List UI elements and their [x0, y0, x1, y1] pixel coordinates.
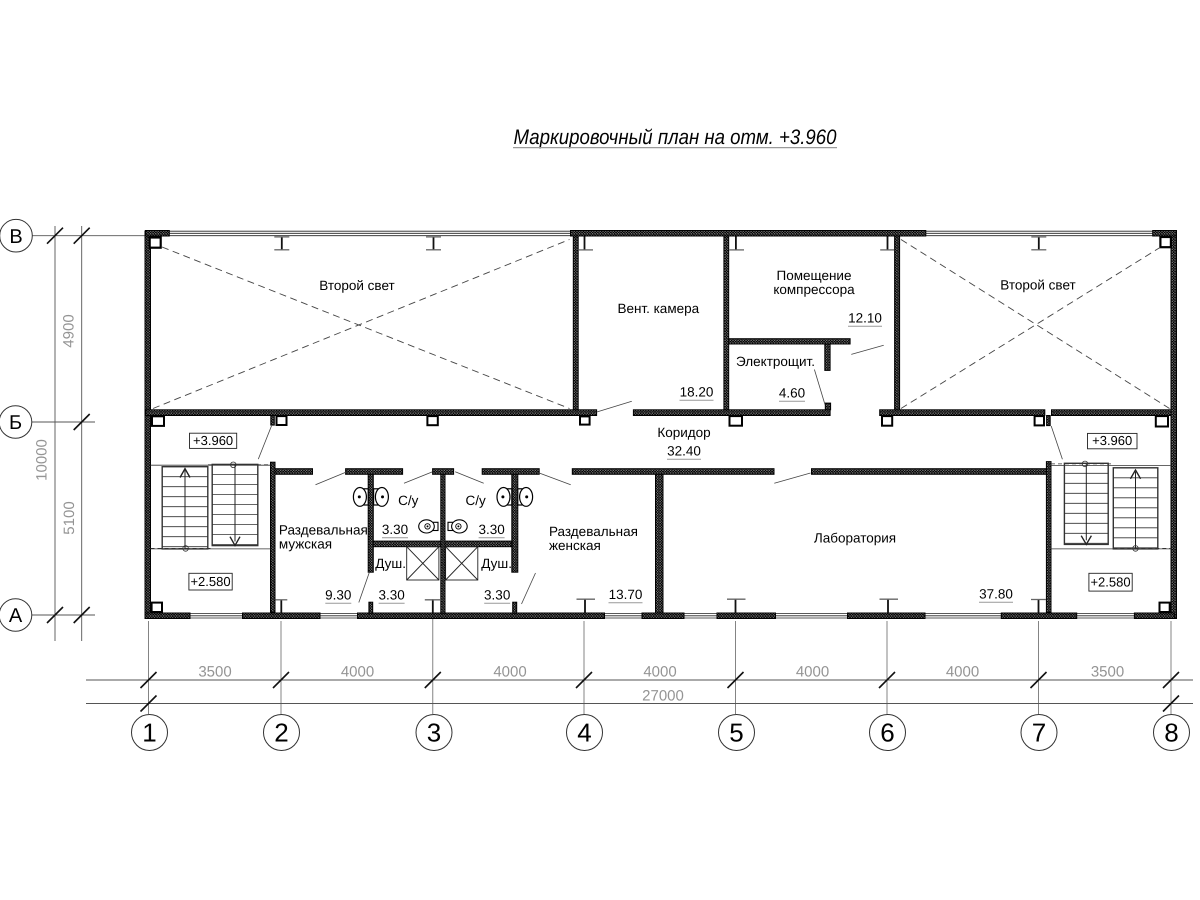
svg-text:3: 3 — [427, 718, 441, 748]
svg-text:32.40: 32.40 — [667, 444, 701, 459]
svg-text:3.30: 3.30 — [484, 588, 510, 603]
svg-text:Раздевальная: Раздевальная — [279, 523, 368, 538]
svg-text:4000: 4000 — [796, 664, 829, 681]
svg-text:5: 5 — [729, 718, 743, 748]
svg-text:Маркировочный план на отм. +3.: Маркировочный план на отм. +3.960 — [514, 126, 837, 149]
svg-text:12.10: 12.10 — [848, 311, 882, 326]
svg-text:3.30: 3.30 — [382, 522, 408, 537]
svg-text:Помещение: Помещение — [777, 268, 852, 283]
svg-text:Второй свет: Второй свет — [319, 278, 394, 293]
svg-text:27000: 27000 — [642, 688, 684, 705]
svg-text:Душ.: Душ. — [481, 556, 512, 571]
svg-text:Душ.: Душ. — [375, 556, 406, 571]
svg-text:Вент. камера: Вент. камера — [617, 301, 699, 316]
svg-text:4: 4 — [577, 718, 591, 748]
svg-text:4000: 4000 — [946, 664, 979, 681]
svg-text:4.60: 4.60 — [779, 386, 805, 401]
svg-text:3500: 3500 — [198, 664, 231, 681]
svg-text:+2.580: +2.580 — [1090, 574, 1130, 589]
svg-text:+2.580: +2.580 — [190, 574, 230, 589]
svg-text:Б: Б — [9, 412, 22, 434]
svg-text:женская: женская — [549, 538, 601, 553]
svg-text:Электрощит.: Электрощит. — [736, 354, 815, 369]
svg-text:Раздевальная: Раздевальная — [549, 524, 638, 539]
svg-text:мужская: мужская — [279, 537, 332, 552]
svg-text:4000: 4000 — [341, 664, 374, 681]
svg-text:13.70: 13.70 — [609, 587, 643, 602]
svg-text:4000: 4000 — [493, 664, 526, 681]
svg-text:18.20: 18.20 — [680, 385, 714, 400]
svg-text:Лаборатория: Лаборатория — [814, 531, 896, 546]
svg-text:3.30: 3.30 — [378, 588, 404, 603]
svg-text:9.30: 9.30 — [325, 588, 351, 603]
svg-text:А: А — [9, 605, 23, 627]
svg-text:5100: 5100 — [61, 501, 78, 534]
svg-text:компрессора: компрессора — [773, 282, 855, 297]
svg-text:4900: 4900 — [61, 314, 78, 347]
svg-text:3.30: 3.30 — [478, 522, 504, 537]
svg-text:6: 6 — [880, 718, 894, 748]
svg-text:В: В — [9, 226, 22, 248]
svg-text:2: 2 — [274, 718, 288, 748]
svg-text:10000: 10000 — [34, 439, 51, 481]
svg-text:С/у: С/у — [465, 493, 486, 508]
svg-text:37.80: 37.80 — [979, 587, 1013, 602]
svg-text:С/у: С/у — [398, 493, 419, 508]
svg-text:7: 7 — [1032, 718, 1046, 748]
svg-text:3500: 3500 — [1091, 664, 1124, 681]
svg-text:+3.960: +3.960 — [193, 433, 233, 448]
svg-text:1: 1 — [142, 718, 156, 748]
svg-text:+3.960: +3.960 — [1092, 433, 1132, 448]
svg-text:8: 8 — [1164, 718, 1178, 748]
svg-text:4000: 4000 — [643, 664, 676, 681]
svg-text:Второй свет: Второй свет — [1000, 278, 1075, 293]
svg-text:Коридор: Коридор — [657, 425, 710, 440]
